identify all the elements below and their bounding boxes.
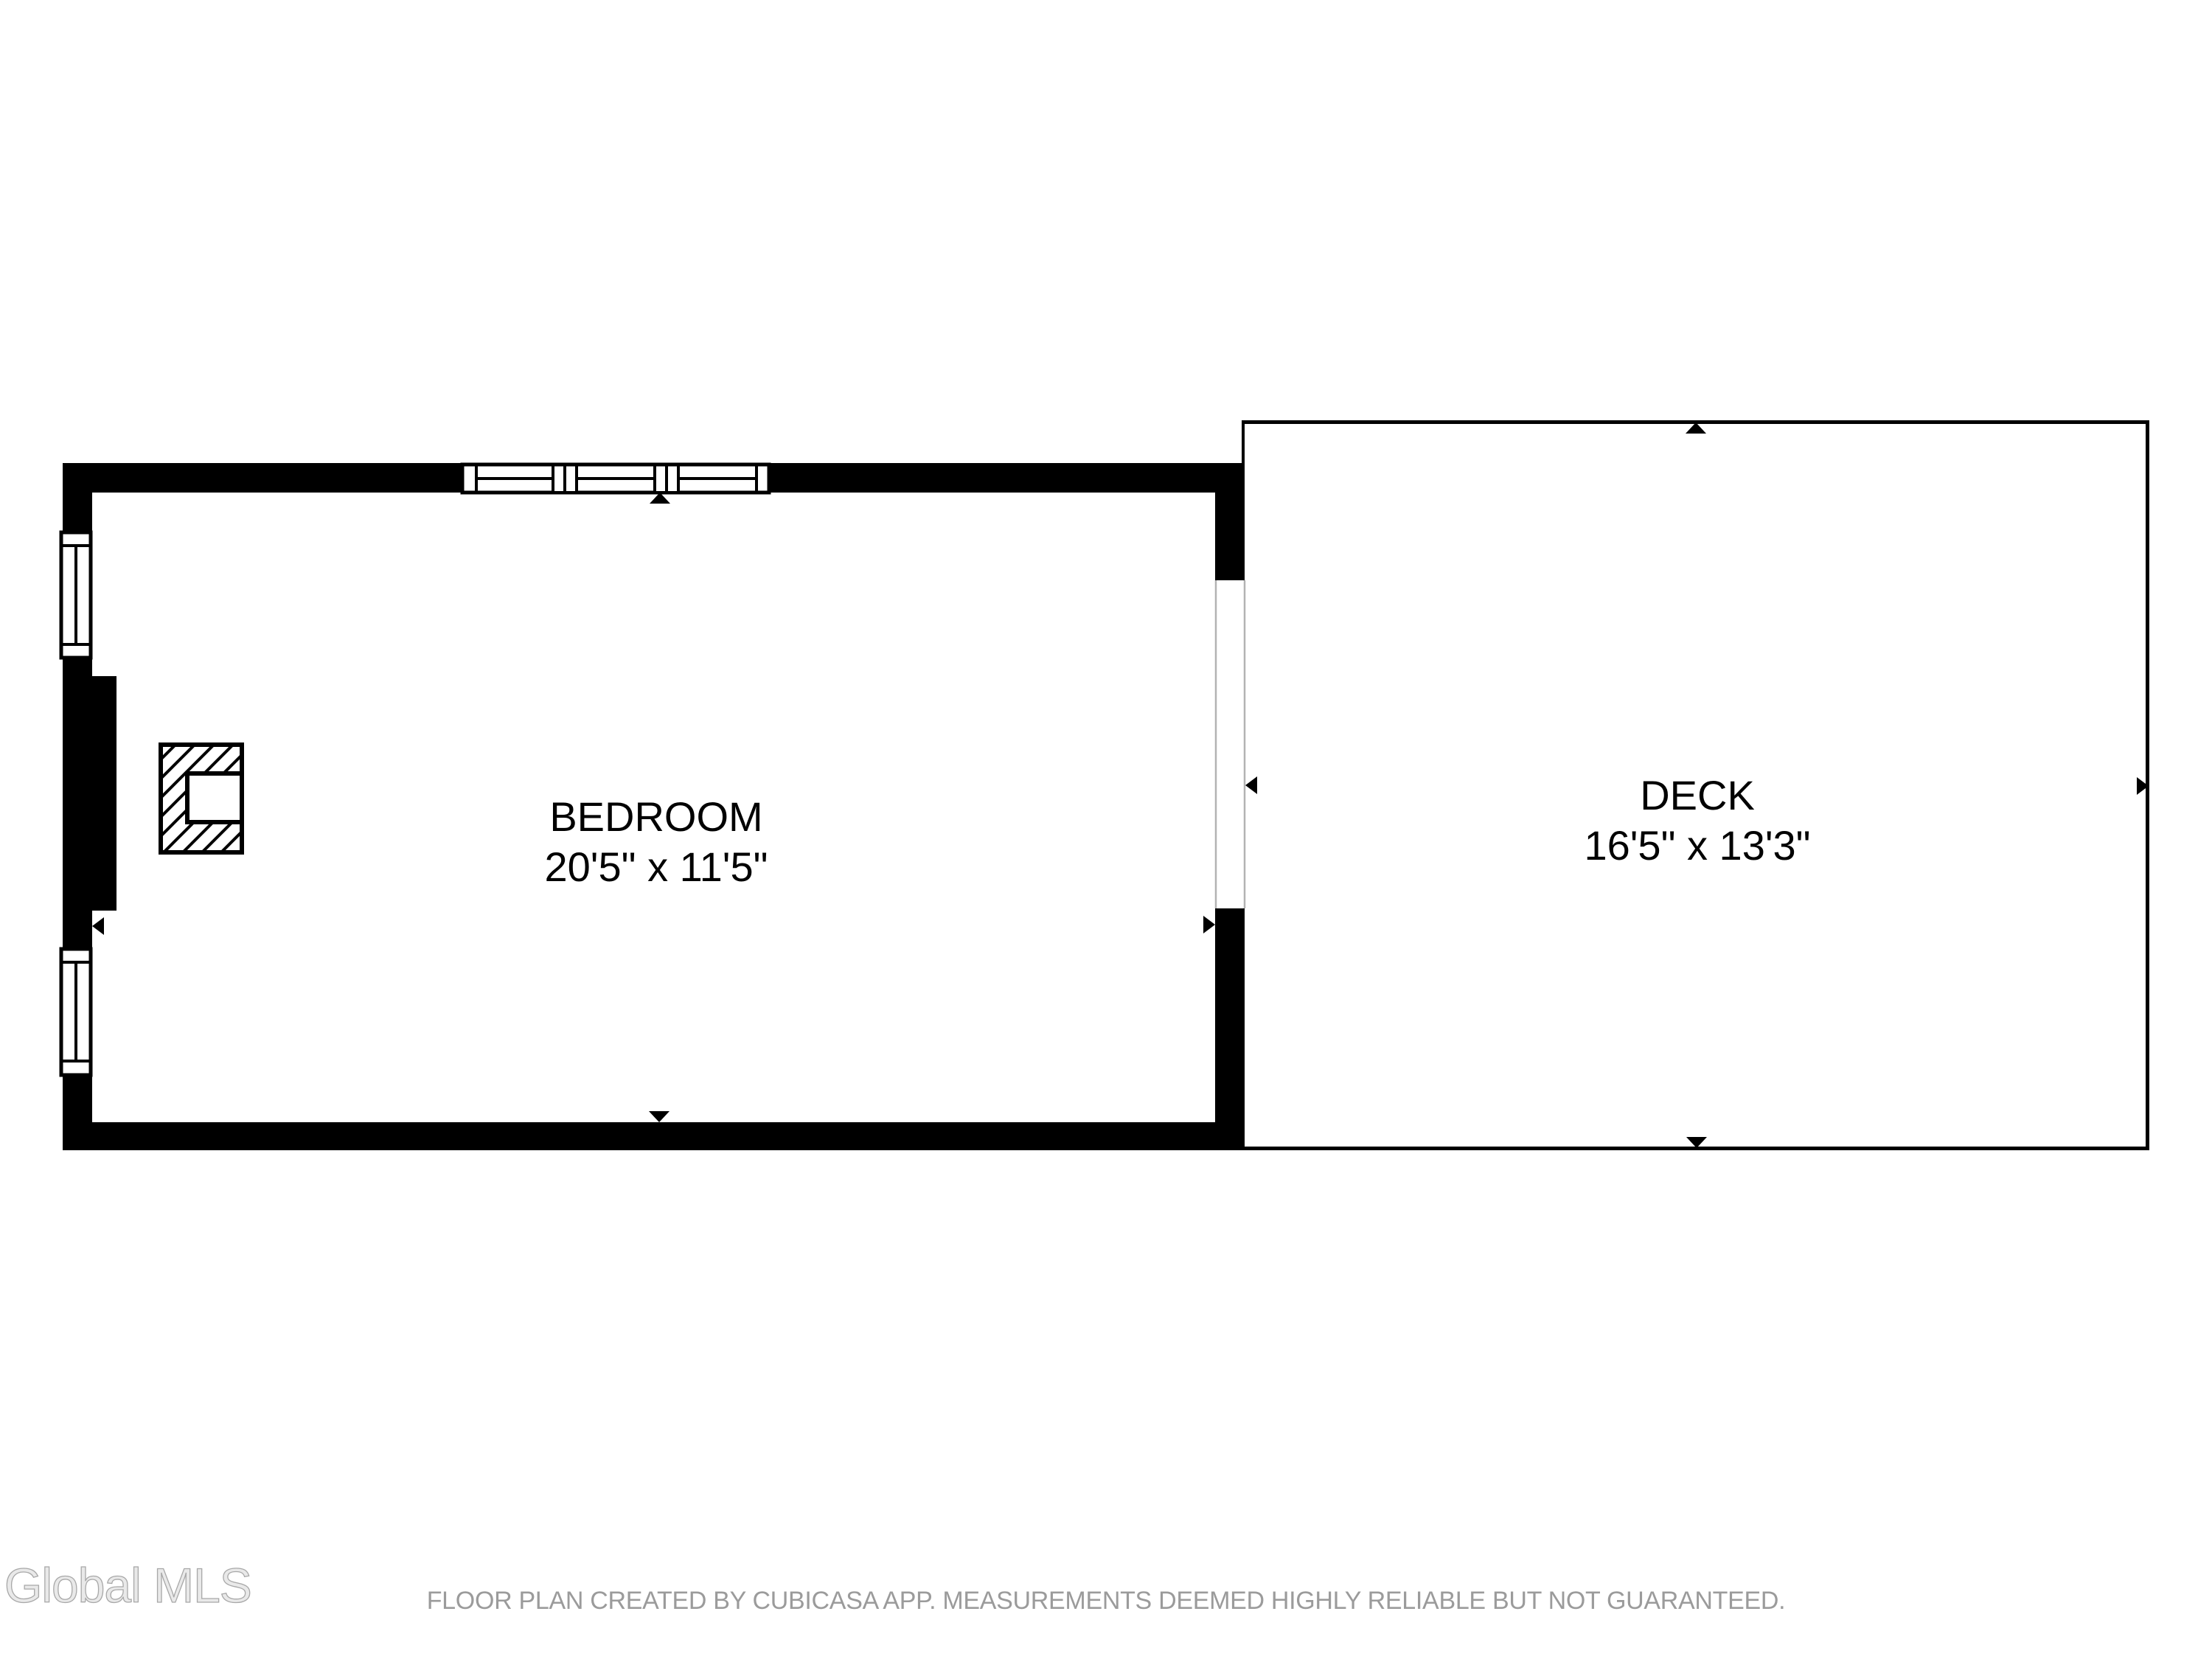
window-left-upper-icon xyxy=(61,532,91,658)
bedroom-label: BEDROOM 20'5" x 11'5" xyxy=(545,792,768,892)
bedroom-wall-right-lower xyxy=(1215,908,1245,1150)
floor-plan-drawing xyxy=(0,0,2212,1659)
bedroom-bottom-arrow-icon xyxy=(649,1111,669,1122)
deck-name: DECK xyxy=(1584,771,1810,821)
bedroom-name: BEDROOM xyxy=(545,792,768,842)
bedroom-wall-right-upper xyxy=(1215,463,1245,580)
footer-disclaimer: FLOOR PLAN CREATED BY CUBICASA APP. MEAS… xyxy=(0,1587,2212,1615)
window-left-lower-icon xyxy=(61,949,91,1075)
bedroom-dimensions: 20'5" x 11'5" xyxy=(545,842,768,892)
bedroom-interior-wall-stub xyxy=(92,676,116,911)
deck-dimensions: 16'5" x 13'3" xyxy=(1584,821,1810,871)
floor-plan-canvas: BEDROOM 20'5" x 11'5" DECK 16'5" x 13'3"… xyxy=(0,0,2212,1659)
deck-label: DECK 16'5" x 13'3" xyxy=(1584,771,1810,871)
bedroom-left-arrow-icon xyxy=(92,917,104,935)
bedroom-right-arrow-icon xyxy=(1203,916,1215,933)
bedroom-wall-bottom xyxy=(63,1122,1245,1150)
window-top-icon xyxy=(462,465,769,493)
chimney-icon xyxy=(161,745,242,852)
